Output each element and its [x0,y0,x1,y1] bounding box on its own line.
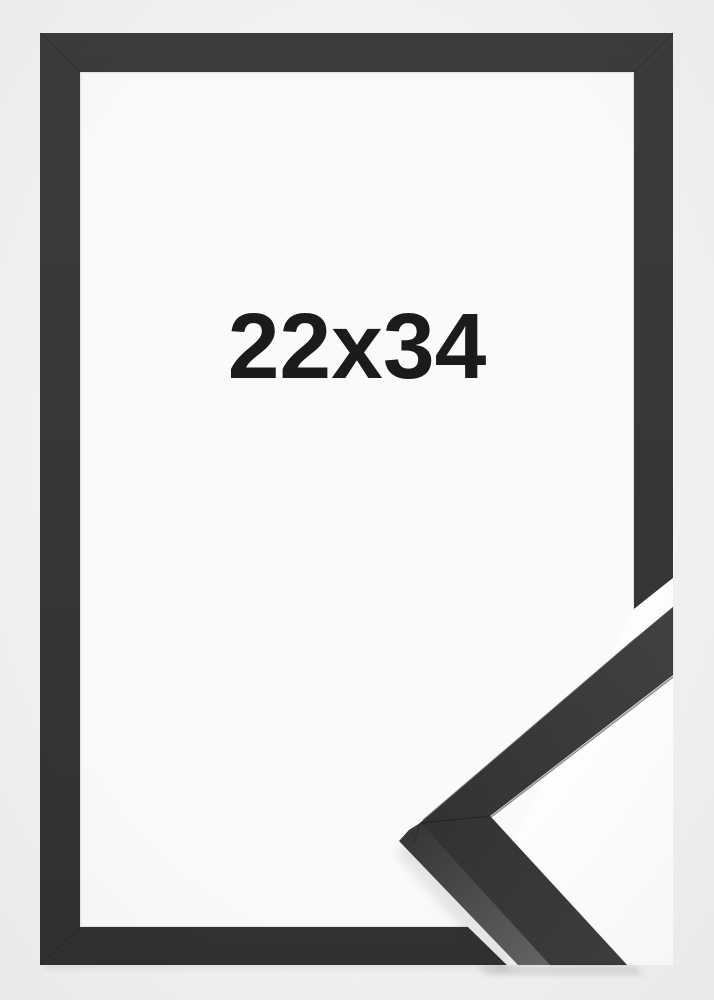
vignette [0,0,714,1000]
product-image: 22x34 [0,0,714,1000]
